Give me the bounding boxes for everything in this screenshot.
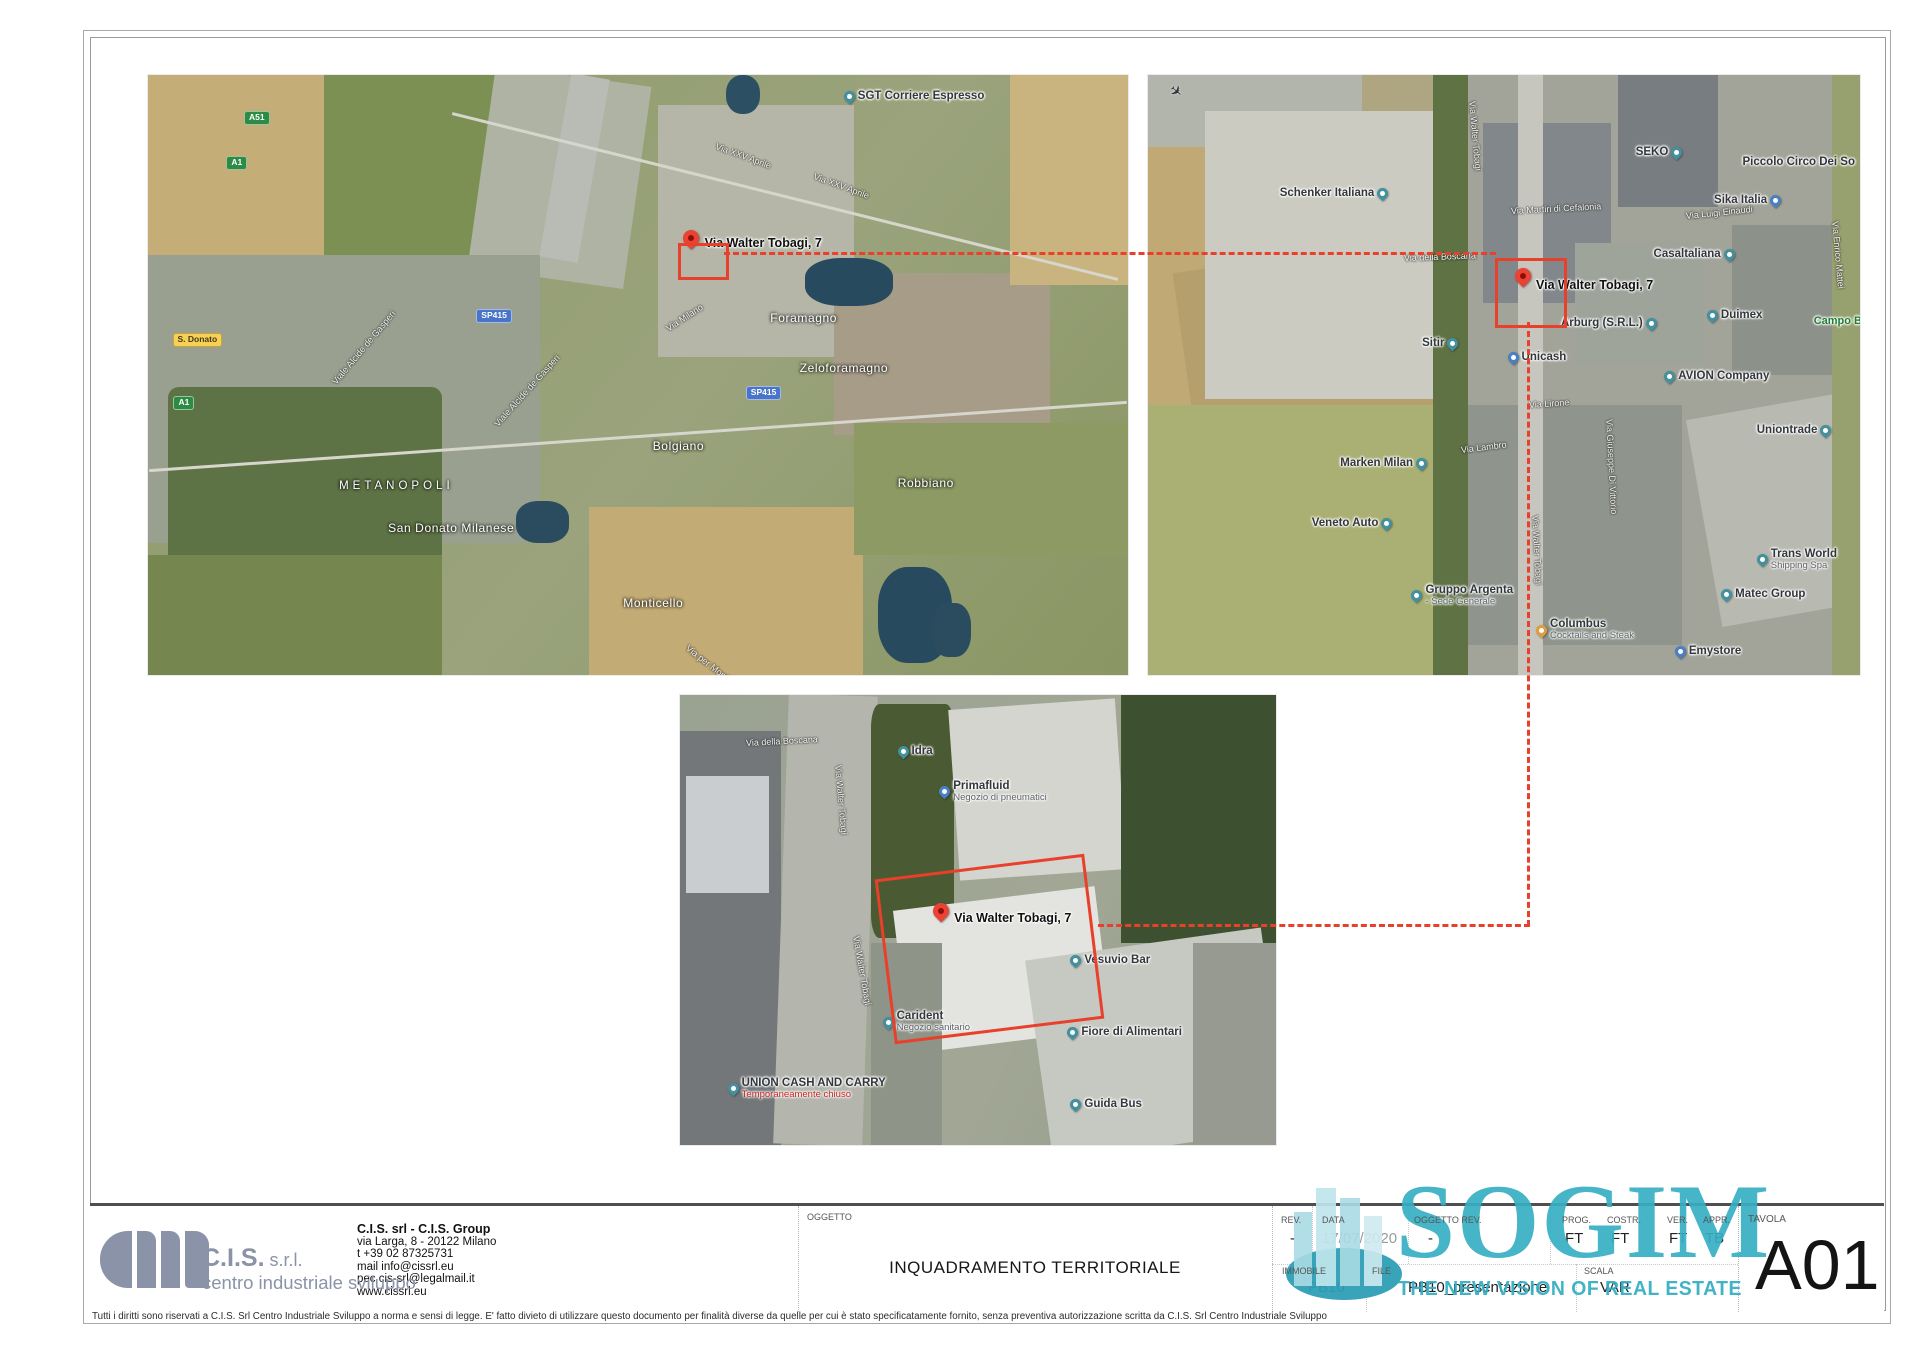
route-badge: A1 <box>226 156 247 170</box>
tavola-value: A01 <box>1755 1234 1880 1296</box>
poi-pin-icon <box>1414 455 1430 471</box>
oggetto-rev-label: OGGETTO REV. <box>1414 1215 1482 1225</box>
map-label: Idra <box>898 745 933 758</box>
map-label: Matec Group <box>1721 588 1805 601</box>
map-label: Monticello <box>623 597 683 611</box>
poi-pin-icon <box>1445 335 1461 351</box>
terrain-patch <box>854 423 1128 555</box>
route-badge: A51 <box>244 111 270 125</box>
divider <box>1272 1206 1273 1312</box>
divider <box>1366 1264 1367 1312</box>
connector-dashed-line <box>724 252 1496 255</box>
prog-value: FT <box>1565 1230 1583 1247</box>
map-label: Marken Milan <box>1340 457 1427 470</box>
data-value: 17/07/2020 <box>1322 1230 1397 1247</box>
site-boundary-polygon <box>875 854 1105 1044</box>
satellite-map-neighbourhood: ✈Schenker ItalianaVia Walter TobagiSEKOP… <box>1148 75 1860 675</box>
divider <box>1576 1264 1577 1312</box>
poi-pin-icon <box>1754 552 1770 568</box>
map-label: Guida Bus <box>1070 1098 1142 1111</box>
route-badge: SP415 <box>476 309 512 323</box>
terrain-patch <box>932 603 971 657</box>
poi-pin-icon <box>1068 1097 1084 1113</box>
poi-pin-icon <box>1662 369 1678 385</box>
costr-label: COSTR. <box>1607 1215 1641 1225</box>
poi-pin-icon <box>1721 247 1737 263</box>
terrain-patch <box>1193 943 1276 1146</box>
oggetto-rev-value: - <box>1428 1230 1433 1247</box>
route-badge: S. Donato <box>173 333 223 347</box>
terrain-patch <box>589 507 863 675</box>
company-phone: t +39 02 87325731 <box>357 1248 496 1261</box>
ver-label: VER. <box>1667 1215 1688 1225</box>
prog-label: PROG. <box>1562 1215 1591 1225</box>
sogim-building-icon <box>1286 1186 1402 1316</box>
poi-pin-icon <box>1375 185 1391 201</box>
file-label: FILE <box>1372 1266 1391 1276</box>
map-label: Emystore <box>1675 645 1741 658</box>
poi-pin-icon <box>937 784 953 800</box>
map-label: PrimafluidNegozio di pneumatici <box>939 780 1046 804</box>
poi-pin-icon <box>1669 145 1685 161</box>
map-label: AVION Company <box>1664 370 1769 383</box>
map-label: SGT Corriere Espresso <box>844 90 985 103</box>
map-label: Casaltaliana <box>1654 248 1735 261</box>
appr-value: TB <box>1705 1230 1724 1247</box>
map-label: Sitir <box>1422 337 1458 350</box>
map-label: Veneto Auto <box>1312 517 1393 530</box>
site-highlight-rect-wide <box>678 243 729 280</box>
map-label: Fiore di Alimentari <box>1067 1026 1182 1039</box>
copyright-disclaimer: Tutti i diritti sono riservati a C.I.S. … <box>92 1311 1882 1322</box>
immobile-value: PB10 <box>1308 1279 1345 1296</box>
scala-label: SCALA <box>1584 1266 1614 1276</box>
connector-dashed-line <box>1527 322 1530 926</box>
poi-pin-icon <box>895 743 911 759</box>
terrain-patch <box>1148 405 1433 675</box>
poi-pin-icon <box>842 89 858 105</box>
file-value: PB10_presentazione <box>1408 1279 1547 1296</box>
terrain-patch <box>148 555 442 675</box>
route-badge: SP415 <box>746 386 782 400</box>
terrain-patch <box>686 776 769 893</box>
poi-pin-icon <box>1505 350 1521 366</box>
terrain-patch <box>805 258 893 306</box>
terrain-patch <box>1121 695 1276 943</box>
map-label: Unicash <box>1508 351 1567 364</box>
map-label: Bolgiano <box>653 440 705 454</box>
drawing-sheet: SGT Corriere EspressoVia XXV AprileVia X… <box>0 0 1920 1358</box>
poi-pin-icon <box>1379 515 1395 531</box>
poi-pin-icon <box>1705 308 1721 324</box>
terrain-patch <box>1618 75 1718 207</box>
site-highlight-rect-neighbourhood <box>1495 258 1567 328</box>
cis-logo-subtitle: centro industriale sviluppo <box>202 1272 416 1294</box>
poi-pin-icon <box>1065 1025 1081 1041</box>
company-name: C.I.S. srl - C.I.S. Group <box>357 1223 496 1236</box>
terrain-patch <box>516 501 570 543</box>
map-label: Schenker Italiana <box>1280 187 1389 200</box>
ver-value: FT <box>1669 1230 1687 1247</box>
immobile-label: IMMOBILE <box>1282 1266 1326 1276</box>
sheet-subject: INQUADRAMENTO TERRITORIALE <box>798 1258 1272 1278</box>
map-label: Duimex <box>1707 309 1763 322</box>
route-badge: A1 <box>173 396 194 410</box>
tavola-label: TAVOLA <box>1748 1214 1786 1225</box>
map-label: Gruppo Argenta- Sede Generale <box>1411 584 1513 608</box>
map-label: ColumbusCocktails and Steak <box>1536 618 1634 642</box>
map-label: Uniontrade <box>1757 424 1832 437</box>
map-label: Foramagno <box>770 312 837 326</box>
satellite-map-wide-area: SGT Corriere EspressoVia XXV AprileVia X… <box>148 75 1128 675</box>
appr-label: APPR. <box>1703 1215 1730 1225</box>
divider <box>1272 1264 1738 1265</box>
terrain-patch <box>726 75 760 114</box>
divider <box>1738 1206 1739 1312</box>
map-label: Piccolo Circo Dei So <box>1743 156 1855 169</box>
poi-pin-icon <box>1768 193 1784 209</box>
map-label: Zeloforamagno <box>800 362 889 376</box>
poi-pin-icon <box>1673 644 1689 660</box>
map-label: Robbiano <box>898 477 954 491</box>
rev-value: - <box>1290 1230 1295 1247</box>
poi-pin-icon <box>1643 316 1659 332</box>
map-label: METANOPOLI <box>339 480 454 493</box>
map-label: Arburg (S.R.L.) <box>1561 317 1657 330</box>
map-label: SEKO <box>1636 146 1683 159</box>
divider <box>1550 1206 1551 1264</box>
costr-value: FT <box>1611 1230 1629 1247</box>
oggetto-label: OGGETTO <box>807 1212 852 1222</box>
cis-logo-name: C.I.S. s.r.l. <box>202 1244 303 1273</box>
company-address: via Larga, 8 - 20122 Milano <box>357 1236 496 1249</box>
map-label: Trans WorldShipping Spa <box>1757 548 1837 572</box>
scala-value: VAR <box>1600 1279 1630 1296</box>
connector-dashed-line <box>1098 924 1530 927</box>
divider <box>1408 1206 1409 1264</box>
poi-pin-icon <box>725 1081 741 1097</box>
divider <box>1312 1206 1313 1264</box>
map-label: San Donato Milanese <box>388 522 514 536</box>
map-label: UNION CASH AND CARRYTemporaneamente chiu… <box>728 1077 886 1101</box>
poi-pin-icon <box>1818 423 1834 439</box>
poi-pin-icon <box>1534 622 1550 638</box>
poi-pin-icon <box>1409 588 1425 604</box>
title-block: C.I.S. s.r.l. centro industriale svilupp… <box>90 1203 1884 1312</box>
rev-label: REV. <box>1281 1215 1301 1225</box>
poi-pin-icon <box>1719 587 1735 603</box>
airplane-icon: ✈ <box>1169 84 1182 101</box>
data-label: DATA <box>1322 1215 1345 1225</box>
map-label: Campo B <box>1814 315 1860 328</box>
